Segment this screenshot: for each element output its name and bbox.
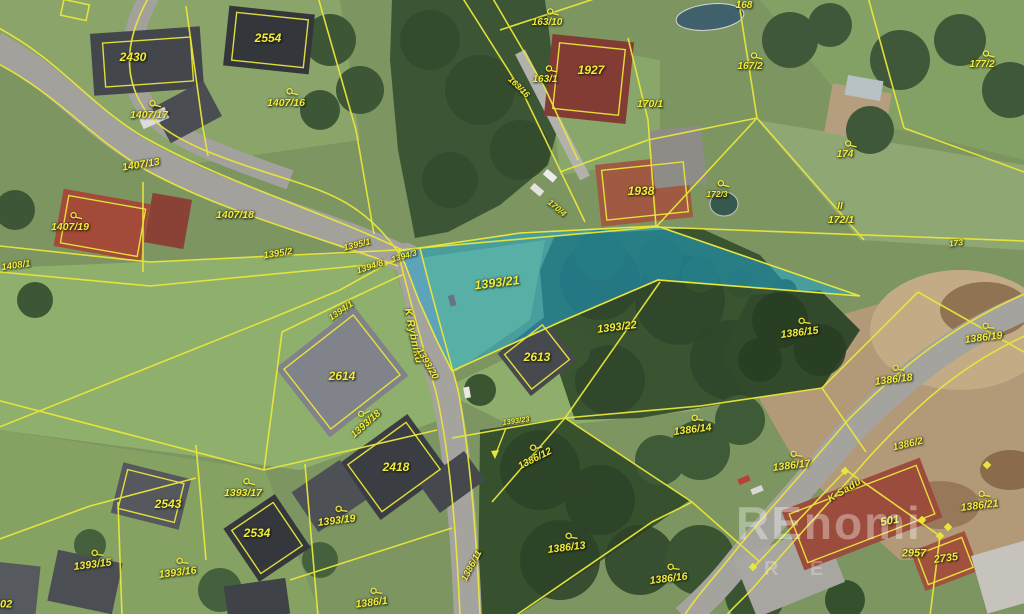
label-text: 1407/13 (121, 157, 160, 173)
label-text: 1393/17 (224, 488, 262, 499)
label-text: 1386/18 (874, 372, 913, 387)
label-text: 1408/1 (1, 259, 31, 272)
label-text: 168 (736, 1, 753, 11)
label-text: 2614 (329, 370, 356, 382)
label-text: 1395/1 (343, 237, 372, 252)
parcel-number-label: 1395/1 (343, 237, 372, 252)
building-number-label: 2554 (255, 32, 282, 44)
parcel-number-label: 170/4 (546, 198, 568, 218)
label-text: 1927 (578, 64, 605, 76)
label-text: 2430 (120, 51, 147, 63)
label-text: 1386/16 (649, 571, 688, 586)
landuse-symbol-icon (335, 506, 336, 515)
label-text: 1394/1 (327, 299, 355, 322)
label-text: 1394/3 (390, 248, 417, 263)
parcel-number-label: 1407/13 (121, 157, 160, 173)
parcel-number-label: 1386/17 (771, 449, 811, 474)
label-text: 1393/22 (597, 320, 638, 336)
label-text: 2613 (524, 351, 551, 363)
label-text: 2418 (383, 461, 410, 473)
label-text: 1393/23 (502, 415, 530, 426)
landuse-symbol-icon (565, 533, 566, 542)
parcel-number-label: 177/2 (969, 50, 994, 70)
label-text: 1393/19 (317, 513, 356, 528)
landuse-symbol-icon (176, 558, 177, 567)
label-text: 177/2 (969, 60, 994, 70)
label-text: 1407/19 (51, 222, 89, 233)
label-text: 172/3 (706, 190, 727, 199)
parcel-number-label: 1386/1 (354, 586, 388, 610)
label-text: 2554 (255, 32, 282, 44)
landuse-symbol-icon (667, 564, 668, 573)
street-name-label: K Sadu (826, 477, 863, 505)
street-name-label: K Rybníku (402, 307, 424, 364)
building-number-label: 2418 (383, 461, 410, 473)
building-number-label: 2502 (0, 600, 12, 611)
label-text: 1393/18 (350, 409, 384, 441)
parcel-number-label: 1394/8 (356, 258, 385, 275)
label-text: 1386/2 (892, 437, 924, 454)
label-text: 1386/12 (517, 447, 554, 472)
parcel-number-label: 167/2 (737, 52, 762, 72)
label-text: 1393/15 (73, 557, 112, 572)
parcel-number-label: 1393/18 (343, 401, 383, 440)
label-text: 172/1 (828, 215, 854, 226)
parcel-number-label: 1386/16 (648, 562, 688, 587)
parcel-number-label: 1386/14 (672, 413, 712, 438)
parcel-number-label: 1386/15 (779, 316, 819, 341)
parcel-number-label: 172/3 (706, 180, 727, 199)
parcel-number-label: 1407/16 (267, 88, 305, 109)
parcel-number-label: 1386/21 (959, 489, 999, 514)
parcel-number-label: 1393/23 (502, 415, 530, 426)
parcel-number-label: II (837, 202, 843, 212)
parcel-number-label: 1407/17 (130, 100, 168, 121)
parcel-number-label: 1386/19 (963, 321, 1003, 346)
landuse-symbol-icon (356, 414, 362, 421)
label-text: K Sadu (826, 477, 863, 505)
building-number-label: 2534 (244, 527, 271, 539)
parcel-number-label: 163/16 (507, 75, 532, 99)
parcel-number-label: 1393/20 (414, 347, 439, 381)
parcel-number-label: 1395/2 (263, 247, 293, 261)
label-text: 1407/16 (267, 98, 305, 109)
parcel-number-label: 1386/11 (460, 549, 484, 583)
parcel-number-label: 163/1 (532, 65, 557, 85)
parcel-number-label: 1393/16 (157, 556, 197, 581)
label-text: 1407/18 (216, 210, 254, 221)
label-text: 2543 (155, 498, 182, 510)
label-text: 2502 (0, 600, 12, 611)
parcel-number-label: 1393/22 (597, 320, 638, 336)
parcel-number-label: 1386/13 (546, 531, 586, 556)
label-text: 170/4 (546, 198, 568, 218)
label-text: 1407/17 (130, 110, 168, 121)
label-text: 2534 (244, 527, 271, 539)
label-text: 1395/2 (263, 247, 293, 261)
label-text: 501 (880, 515, 901, 530)
label-text: 174 (837, 150, 854, 160)
label-text: 2957 (902, 549, 926, 560)
label-text: 167/2 (737, 62, 762, 72)
label-text: 163/16 (507, 75, 532, 99)
building-number-label: 1927 (578, 64, 605, 76)
landuse-symbol-icon (892, 365, 893, 374)
label-text: 1393/21 (474, 274, 520, 292)
building-number-label: 2957 (902, 549, 926, 560)
building-number-label: 2614 (329, 370, 356, 382)
parcel-number-label: 1393/17 (224, 478, 262, 499)
landuse-symbol-icon (978, 491, 979, 500)
landuse-symbol-icon (691, 415, 692, 424)
parcel-number-label: 168 (736, 1, 753, 11)
label-text: 1394/8 (356, 258, 385, 275)
parcel-number-label: 1394/3 (390, 248, 417, 263)
label-text: 163/1 (532, 75, 557, 85)
label-text: 1386/17 (772, 458, 811, 473)
parcel-labels-layer: 243025541407/171407/161407/131407/191407… (0, 0, 1024, 614)
parcel-number-label: 1407/18 (216, 210, 254, 221)
label-text: II (837, 202, 843, 212)
label-text: 163/10 (532, 18, 563, 28)
label-text: 2735 (933, 552, 959, 566)
parcel-number-label: 173 (949, 238, 964, 248)
landuse-symbol-icon (798, 318, 799, 327)
parcel-number-label: 1407/19 (51, 212, 89, 233)
landuse-symbol-icon (982, 323, 983, 332)
landuse-symbol-icon (370, 588, 371, 597)
building-number-label: 2613 (524, 351, 551, 363)
label-text: 1386/13 (547, 540, 586, 555)
label-text: 1386/15 (780, 325, 819, 340)
label-text: 1393/20 (414, 347, 439, 381)
label-text: 1386/14 (673, 422, 712, 437)
building-number-label: 501 (880, 515, 901, 530)
parcel-number-label: 174 (837, 140, 854, 160)
landuse-symbol-icon (790, 451, 791, 460)
building-number-label: 2430 (120, 51, 147, 63)
parcel-number-label: 1408/1 (1, 259, 31, 272)
parcel-number-label: 1386/12 (512, 438, 553, 472)
parcel-number-label: 170/1 (637, 99, 663, 110)
parcel-number-label: 1386/2 (892, 437, 924, 454)
label-text: 1386/1 (355, 596, 388, 610)
parcel-number-label: 163/10 (532, 8, 563, 28)
building-number-label: 1938 (628, 185, 655, 197)
label-text: 170/1 (637, 99, 663, 110)
label-text: 173 (949, 238, 964, 248)
label-text: 1938 (628, 185, 655, 197)
building-number-label: 2735 (933, 552, 959, 566)
parcel-number-label: 1386/18 (873, 363, 913, 388)
parcel-number-label: 1393/21 (474, 274, 520, 292)
landuse-symbol-icon (528, 446, 532, 454)
parcel-number-label: 1394/1 (327, 299, 355, 322)
map-canvas[interactable]: 243025541407/171407/161407/131407/191407… (0, 0, 1024, 614)
label-text: 1386/19 (964, 330, 1003, 345)
label-text: 1386/21 (960, 498, 999, 513)
label-text: 1393/16 (158, 565, 197, 580)
parcel-number-label: 1393/15 (72, 548, 112, 573)
label-text: 1386/11 (460, 549, 484, 583)
parcel-number-label: 1393/19 (316, 504, 356, 529)
parcel-number-label: 172/1 (828, 215, 854, 226)
building-number-label: 2543 (155, 498, 182, 510)
landuse-symbol-icon (91, 550, 92, 559)
label-text: K Rybníku (402, 307, 424, 364)
